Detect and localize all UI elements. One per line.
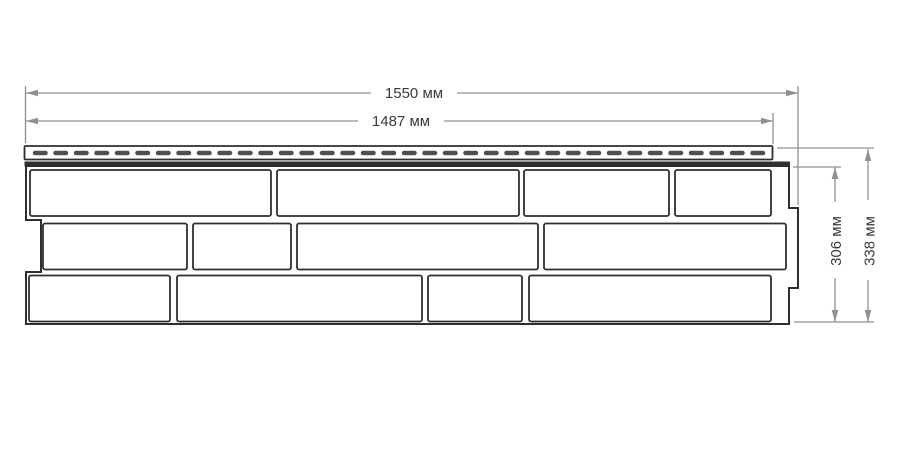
brick (675, 170, 771, 216)
brick-row-2 (43, 224, 786, 270)
dimension-label: 1550 мм (385, 85, 443, 102)
brick (544, 224, 786, 270)
arrow-down-icon (832, 310, 839, 322)
brick (29, 276, 170, 322)
brick-row-3 (29, 276, 771, 322)
panel (25, 146, 799, 324)
brick (43, 224, 187, 270)
brick (177, 276, 422, 322)
arrow-up-icon (865, 149, 872, 161)
brick-row-1 (30, 170, 771, 216)
arrow-down-icon (865, 310, 872, 322)
arrow-right-icon (761, 118, 773, 125)
dimension-width-inner: 1487 мм (26, 113, 773, 144)
brick (277, 170, 519, 216)
brick (524, 170, 669, 216)
brick (297, 224, 538, 270)
brick (193, 224, 291, 270)
arrow-right-icon (786, 90, 798, 97)
arrow-up-icon (832, 167, 839, 179)
dimension-label: 338 мм (862, 216, 879, 266)
brick (529, 276, 771, 322)
brick (428, 276, 522, 322)
facade-panel-drawing-page: 1550 мм 1487 мм 306 мм (0, 0, 900, 450)
panel-top-edge (25, 162, 791, 167)
brick (30, 170, 271, 216)
dimension-height-inner: 306 мм (793, 167, 845, 322)
dimension-label: 306 мм (828, 216, 845, 266)
facade-panel-dimension-drawing: 1550 мм 1487 мм 306 мм (0, 0, 900, 450)
dimension-label: 1487 мм (372, 113, 430, 130)
arrow-left-icon (26, 90, 38, 97)
arrow-left-icon (26, 118, 38, 125)
